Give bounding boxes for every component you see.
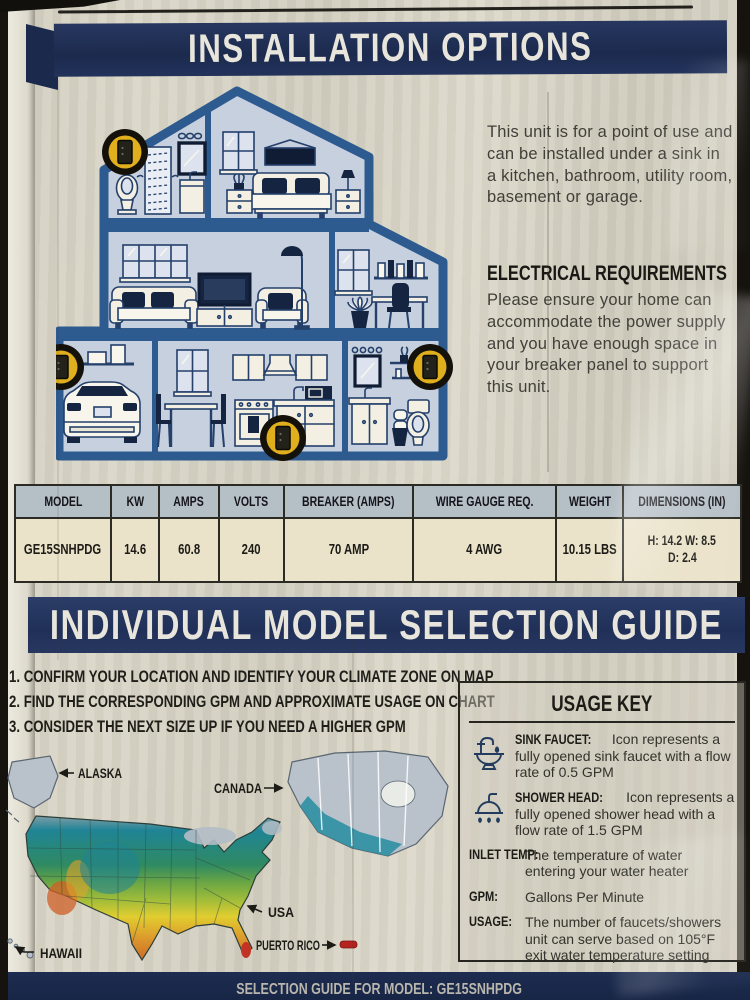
- usage-key-item-text: SHOWER HEAD: Icon represents a fully ope…: [515, 789, 735, 839]
- shower-curtain: [145, 147, 171, 214]
- model-selection-guide-title: INDIVIDUAL MODEL SELECTION GUIDE: [50, 601, 723, 649]
- water-heater-marker: [260, 415, 306, 461]
- canada-shape: [288, 751, 448, 856]
- puerto-rico-shape: [340, 941, 357, 948]
- installation-options-title: INSTALLATION OPTIONS: [188, 25, 593, 72]
- usage-key-item-sink-faucet: SINK FAUCET: Icon represents a fully ope…: [469, 731, 735, 781]
- alaska-shape: [6, 756, 58, 822]
- bottom-model-text: SELECTION GUIDE FOR MODEL: GE15SNHPDG: [236, 981, 522, 999]
- col-header-wire-gauge: WIRE GAUGE REQ.: [414, 486, 557, 519]
- double-window-icon: [120, 245, 190, 282]
- label-usa: USA: [268, 904, 294, 920]
- car-icon: [64, 382, 140, 443]
- usage-key-item-shower-head: SHOWER HEAD: Icon represents a fully ope…: [469, 789, 735, 839]
- col-header-breaker: BREAKER (AMPS): [285, 486, 414, 519]
- climate-zone-map: ALASKA CANADA USA PUERTO RICO HAWAII: [0, 748, 460, 978]
- cell-breaker: 70 AMP: [285, 519, 414, 581]
- tape-glare: [668, 60, 748, 250]
- model-selection-guide-banner: INDIVIDUAL MODEL SELECTION GUIDE: [28, 597, 745, 653]
- cell-wire-gauge: 4 AWG: [414, 519, 557, 581]
- tv-icon: [197, 274, 252, 326]
- cell-kw: 14.6: [112, 519, 160, 581]
- package-crease: [547, 92, 549, 472]
- label-canada: CANADA: [214, 780, 262, 796]
- window-icon: [220, 132, 257, 174]
- package-crease: [57, 80, 59, 660]
- sink-faucet-icon: [469, 731, 509, 771]
- col-header-weight: WEIGHT: [557, 486, 624, 519]
- label-alaska: ALASKA: [78, 765, 122, 781]
- usage-key-item-text: SINK FAUCET: Icon represents a fully ope…: [515, 731, 735, 781]
- cell-volts: 240: [220, 519, 285, 581]
- usa-shape: [26, 816, 282, 960]
- tape-glare: [603, 833, 750, 997]
- hawaii-shape: [8, 939, 33, 958]
- col-header-model: MODEL: [16, 486, 112, 519]
- window-icon: [174, 350, 211, 396]
- package-crease: [352, 640, 354, 985]
- water-heater-marker: [102, 129, 148, 175]
- installation-options-banner: INSTALLATION OPTIONS: [54, 20, 727, 77]
- window-icon: [335, 250, 372, 295]
- label-puerto-rico: PUERTO RICO: [256, 937, 320, 953]
- usage-key-divider: [469, 721, 735, 723]
- col-header-volts: VOLTS: [220, 486, 285, 519]
- bathroom-vanity: [180, 180, 204, 213]
- shower-head-icon: [469, 789, 509, 829]
- col-header-kw: KW: [112, 486, 160, 519]
- label-hawaii: HAWAII: [40, 945, 82, 961]
- bed-icon: [251, 173, 331, 218]
- cell-model: GE15SNHPDG: [16, 519, 112, 581]
- usage-key-title: USAGE KEY: [469, 691, 735, 717]
- water-heater-marker: [407, 344, 453, 390]
- electrical-requirements-heading: ELECTRICAL REQUIREMENTS: [487, 262, 750, 286]
- cell-amps: 60.8: [160, 519, 220, 581]
- col-header-amps: AMPS: [160, 486, 220, 519]
- package-photo: INSTALLATION OPTIONS: [0, 0, 750, 1000]
- house-cutaway-illustration: [56, 83, 462, 475]
